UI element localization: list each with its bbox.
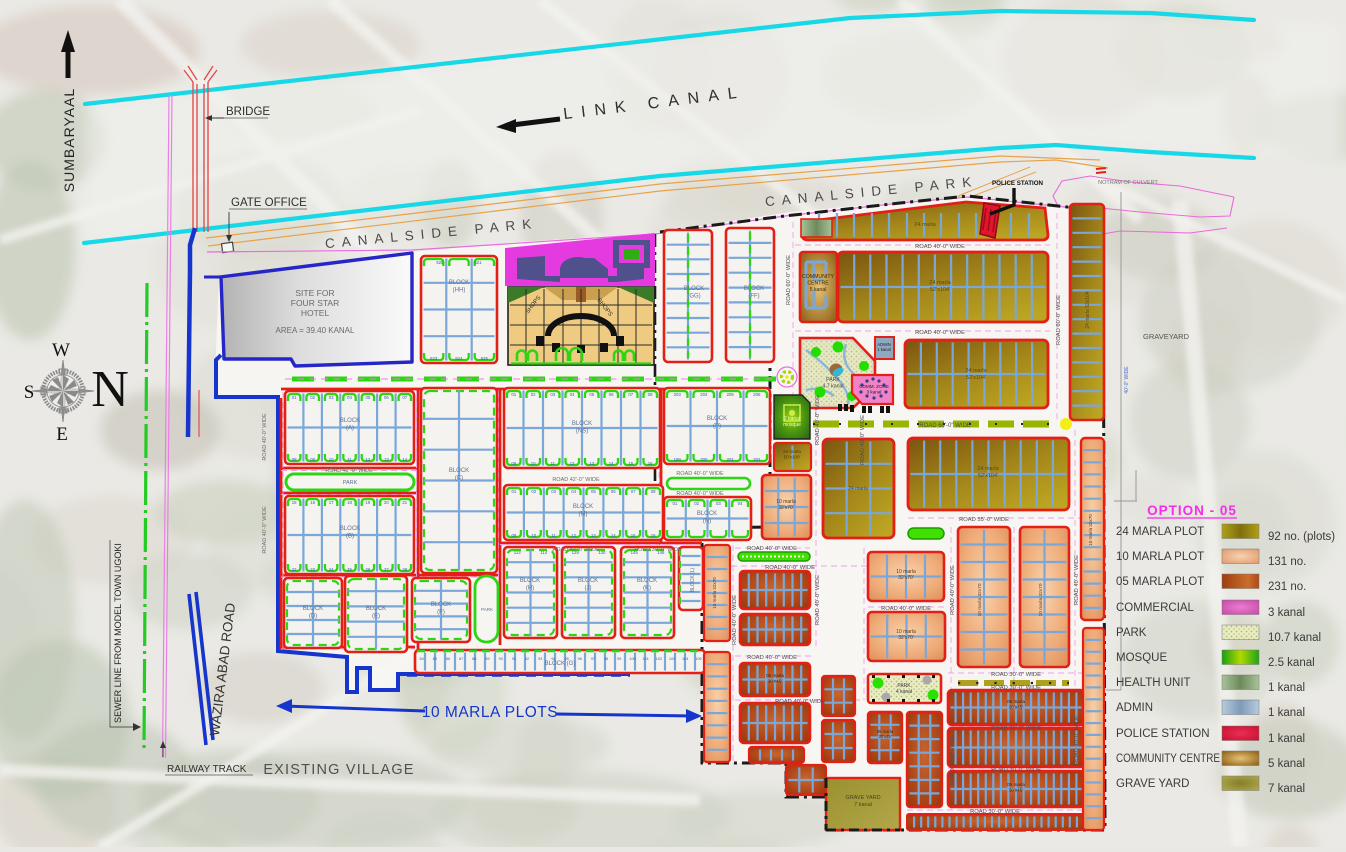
- svg-text:09: 09: [310, 457, 315, 462]
- svg-text:02: 02: [531, 392, 536, 397]
- svg-text:202: 202: [753, 457, 761, 462]
- svg-text:22: 22: [292, 567, 297, 572]
- svg-text:206: 206: [753, 392, 761, 397]
- svg-text:07: 07: [402, 395, 407, 400]
- svg-text:PARK: PARK: [343, 480, 358, 486]
- svg-text:26: 26: [366, 567, 371, 572]
- svg-text:97: 97: [591, 657, 595, 661]
- svg-text:10.7 kanal: 10.7 kanal: [1268, 632, 1321, 644]
- svg-text:PARK4 kanal: PARK4 kanal: [896, 683, 912, 695]
- svg-text:ROAD 40'-0" WIDE: ROAD 40'-0" WIDE: [1074, 715, 1080, 765]
- svg-text:16: 16: [310, 500, 315, 505]
- svg-text:10: 10: [531, 533, 536, 538]
- svg-text:14: 14: [402, 457, 407, 462]
- svg-text:24 marla52'x104': 24 marla52'x104': [977, 466, 999, 479]
- svg-text:24 MARLA PLOT: 24 MARLA PLOT: [1116, 526, 1204, 538]
- svg-text:3 kanal: 3 kanal: [1268, 607, 1305, 619]
- svg-text:92 no. (plots): 92 no. (plots): [1268, 531, 1335, 543]
- svg-text:06: 06: [611, 489, 616, 494]
- svg-text:01: 01: [511, 392, 516, 397]
- svg-text:40'-0" WIDE: 40'-0" WIDE: [1124, 366, 1130, 394]
- svg-text:01: 01: [292, 395, 297, 400]
- svg-text:204: 204: [700, 392, 708, 397]
- svg-text:AREA = 39.40 KANAL: AREA = 39.40 KANAL: [276, 326, 355, 335]
- svg-text:EXISTING VILLAGE: EXISTING VILLAGE: [263, 762, 414, 778]
- svg-text:10 marla 32x70: 10 marla 32x70: [977, 583, 983, 616]
- svg-text:09: 09: [512, 533, 517, 538]
- svg-text:BLOCK (G): BLOCK (G): [545, 661, 576, 667]
- svg-text:10 marla32'x70': 10 marla32'x70': [896, 629, 916, 641]
- svg-text:04: 04: [738, 501, 743, 506]
- svg-text:96: 96: [578, 657, 582, 661]
- svg-text:87: 87: [459, 657, 463, 661]
- svg-text:200: 200: [700, 457, 708, 462]
- svg-text:525: 525: [481, 356, 489, 361]
- svg-text:24 marla: 24 marla: [848, 486, 868, 492]
- svg-text:E: E: [56, 424, 68, 445]
- svg-text:GRAVEYARD: GRAVEYARD: [1143, 332, 1190, 341]
- svg-text:ROAD 40'-0" WIDE: ROAD 40'-0" WIDE: [881, 606, 931, 612]
- svg-text:12: 12: [570, 461, 575, 466]
- svg-text:85: 85: [433, 657, 437, 661]
- svg-text:24 marla: 24 marla: [914, 222, 936, 228]
- svg-text:1 kanal: 1 kanal: [1268, 733, 1305, 745]
- svg-text:90: 90: [499, 657, 503, 661]
- svg-text:15: 15: [628, 461, 633, 466]
- svg-text:RAILWAY TRACK: RAILWAY TRACK: [167, 764, 247, 775]
- svg-text:ROAD 42'-0" WIDE: ROAD 42'-0" WIDE: [325, 468, 373, 474]
- svg-text:203: 203: [674, 392, 682, 397]
- svg-text:03: 03: [329, 395, 334, 400]
- svg-text:14: 14: [609, 461, 614, 466]
- svg-text:ROAD 30'-0" WIDE: ROAD 30'-0" WIDE: [991, 726, 1041, 732]
- svg-text:02: 02: [531, 489, 536, 494]
- svg-text:08: 08: [648, 392, 653, 397]
- svg-text:86: 86: [446, 657, 450, 661]
- svg-text:27: 27: [384, 567, 389, 572]
- svg-text:89: 89: [485, 657, 489, 661]
- svg-text:ROAD 30'-0" WIDE: ROAD 30'-0" WIDE: [950, 735, 956, 785]
- svg-text:ROAD 60'-0" WIDE: ROAD 60'-0" WIDE: [786, 255, 792, 305]
- svg-text:05 MARLA PLOT: 05 MARLA PLOT: [1116, 576, 1204, 588]
- svg-text:114: 114: [540, 550, 547, 555]
- svg-text:20: 20: [384, 500, 389, 505]
- svg-text:99: 99: [617, 657, 621, 661]
- svg-text:146: 146: [657, 550, 665, 555]
- svg-text:95: 95: [564, 657, 568, 661]
- svg-text:10: 10: [329, 457, 334, 462]
- svg-text:07: 07: [631, 489, 636, 494]
- svg-text:15: 15: [631, 533, 636, 538]
- svg-text:1 kanal: 1 kanal: [1268, 682, 1305, 694]
- svg-text:5 kanal: 5 kanal: [1268, 758, 1305, 770]
- svg-text:521: 521: [474, 260, 482, 265]
- svg-text:COMMUNITY CENTRE: COMMUNITY CENTRE: [1116, 753, 1220, 765]
- svg-text:2.5 kanal: 2.5 kanal: [1268, 657, 1315, 669]
- svg-text:ROAD 40'-0" WIDE: ROAD 40'-0" WIDE: [815, 575, 821, 625]
- svg-text:101: 101: [643, 657, 649, 661]
- svg-text:ROAD 60'-0" WIDE: ROAD 60'-0" WIDE: [1056, 295, 1062, 345]
- svg-text:11: 11: [551, 533, 556, 538]
- svg-text:ROAD 40'-0" WIDE: ROAD 40'-0" WIDE: [815, 395, 821, 445]
- svg-text:25: 25: [347, 567, 352, 572]
- svg-text:ROAD 40'-0" WIDE: ROAD 40'-0" WIDE: [775, 699, 825, 705]
- svg-text:10 marla32'x70': 10 marla32'x70': [896, 569, 916, 581]
- svg-text:ROAD 40'-0" WIDE: ROAD 40'-0" WIDE: [1074, 555, 1080, 605]
- svg-text:100: 100: [629, 657, 635, 661]
- svg-text:10 marla 32x70: 10 marla 32x70: [712, 577, 717, 609]
- svg-text:ROAD 40'-0" WIDE: ROAD 40'-0" WIDE: [676, 471, 724, 477]
- svg-text:ROAD 42'-0" WIDE: ROAD 42'-0" WIDE: [552, 477, 600, 483]
- svg-text:17: 17: [329, 500, 334, 505]
- svg-text:03: 03: [716, 501, 721, 506]
- svg-text:28: 28: [402, 567, 407, 572]
- svg-text:16: 16: [651, 533, 656, 538]
- svg-text:91: 91: [512, 657, 516, 661]
- svg-text:5 kanal: 5 kanal: [810, 287, 827, 293]
- svg-text:SITE FORFOUR STAR: SITE FORFOUR STAR: [291, 288, 339, 308]
- svg-text:13: 13: [589, 461, 594, 466]
- svg-text:15: 15: [292, 500, 297, 505]
- svg-text:23: 23: [310, 567, 315, 572]
- svg-text:19: 19: [366, 500, 371, 505]
- svg-text:10 marla 32x70: 10 marla 32x70: [1088, 514, 1093, 546]
- svg-text:129: 129: [572, 550, 580, 555]
- svg-text:104: 104: [682, 657, 688, 661]
- svg-text:14: 14: [611, 533, 616, 538]
- svg-text:523: 523: [430, 356, 438, 361]
- svg-text:05 marla30'x45': 05 marla30'x45': [877, 729, 894, 739]
- svg-text:05: 05: [591, 489, 596, 494]
- svg-text:06: 06: [609, 392, 614, 397]
- svg-text:GRAVE YARD: GRAVE YARD: [1116, 778, 1190, 790]
- svg-text:N: N: [91, 361, 129, 418]
- svg-text:ROAD 30'-0" WIDE: ROAD 30'-0" WIDE: [991, 672, 1041, 678]
- svg-text:84: 84: [419, 657, 423, 661]
- svg-text:04: 04: [347, 395, 352, 400]
- svg-text:145: 145: [631, 550, 639, 555]
- svg-text:BLOCK (L): BLOCK (L): [690, 567, 696, 592]
- svg-text:11: 11: [347, 457, 352, 462]
- svg-text:ROAD 30'-0" WIDE: ROAD 30'-0" WIDE: [991, 685, 1041, 691]
- svg-text:16: 16: [648, 461, 653, 466]
- svg-text:13: 13: [591, 533, 596, 538]
- svg-text:94: 94: [551, 657, 555, 661]
- svg-text:03: 03: [550, 392, 555, 397]
- svg-text:01: 01: [512, 489, 517, 494]
- svg-text:21: 21: [402, 500, 407, 505]
- svg-text:MOSQUE: MOSQUE: [1116, 652, 1167, 664]
- svg-text:10 MARLA PLOTS: 10 MARLA PLOTS: [422, 704, 558, 721]
- svg-text:ROAD 40'-0" WIDE: ROAD 40'-0" WIDE: [860, 415, 866, 465]
- svg-text:201: 201: [727, 457, 735, 462]
- svg-text:08: 08: [651, 489, 656, 494]
- svg-text:PARK: PARK: [481, 607, 493, 612]
- svg-text:ROAD 30'-0" WIDE: ROAD 30'-0" WIDE: [991, 767, 1041, 773]
- svg-text:10 marla 32x70: 10 marla 32x70: [1038, 583, 1044, 616]
- svg-text:92: 92: [525, 657, 529, 661]
- svg-text:131 no.: 131 no.: [1268, 556, 1306, 568]
- svg-text:S: S: [24, 382, 35, 403]
- svg-text:102: 102: [656, 657, 662, 661]
- svg-text:ROAD 40'-0" WIDE: ROAD 40'-0" WIDE: [765, 565, 815, 571]
- svg-text:12: 12: [571, 533, 576, 538]
- svg-text:02: 02: [310, 395, 315, 400]
- svg-text:08: 08: [292, 457, 297, 462]
- svg-text:130: 130: [598, 550, 606, 555]
- svg-text:SEWER LINE FROM MODEL TOWN UGO: SEWER LINE FROM MODEL TOWN UGOKI: [113, 543, 123, 723]
- svg-text:231 no.: 231 no.: [1268, 581, 1306, 593]
- svg-text:POLICE STATION: POLICE STATION: [992, 180, 1044, 187]
- svg-text:01: 01: [673, 501, 678, 506]
- svg-text:ROAD 40'-0" WIDE: ROAD 40'-0" WIDE: [262, 413, 268, 461]
- svg-text:05 marla30'x45': 05 marla30'x45': [1007, 699, 1025, 710]
- svg-text:199: 199: [674, 457, 682, 462]
- svg-text:105: 105: [695, 657, 701, 661]
- svg-text:ROAD 40'-0" WIDE: ROAD 40'-0" WIDE: [747, 546, 797, 552]
- svg-text:07: 07: [628, 392, 633, 397]
- svg-text:ROAD 60'-0" WIDE: ROAD 60'-0" WIDE: [919, 423, 971, 429]
- svg-text:ROAD 40'-0" WIDE: ROAD 40'-0" WIDE: [747, 655, 797, 661]
- svg-text:W: W: [52, 340, 70, 361]
- svg-text:93: 93: [538, 657, 542, 661]
- svg-text:SUMBARYAAL: SUMBARYAAL: [61, 88, 77, 192]
- svg-text:ADMIN1 kanal: ADMIN1 kanal: [877, 342, 891, 352]
- svg-text:ROAD 40'-0" WIDE: ROAD 40'-0" WIDE: [915, 244, 965, 250]
- svg-text:520: 520: [436, 260, 444, 265]
- svg-text:98: 98: [604, 657, 608, 661]
- svg-text:ROAD 40'-0" WIDE: ROAD 40'-0" WIDE: [676, 491, 724, 497]
- svg-text:04: 04: [571, 489, 576, 494]
- svg-text:ROAD 55'-0" WIDE: ROAD 55'-0" WIDE: [959, 517, 1009, 523]
- svg-text:10 marla32'x70': 10 marla32'x70': [776, 499, 796, 511]
- svg-text:113: 113: [514, 550, 521, 555]
- svg-text:HOTEL: HOTEL: [301, 308, 330, 318]
- svg-text:05 marla30'x45': 05 marla30'x45': [1007, 782, 1025, 793]
- svg-text:ADMIN: ADMIN: [1116, 702, 1153, 714]
- svg-text:HEALTH UNIT: HEALTH UNIT: [1116, 677, 1191, 689]
- svg-text:GATE OFFICE: GATE OFFICE: [231, 197, 307, 209]
- svg-text:POLICE STATION: POLICE STATION: [1116, 728, 1210, 740]
- svg-text:ROAD 40'-0" WIDE: ROAD 40'-0" WIDE: [732, 595, 738, 645]
- svg-text:205: 205: [727, 392, 735, 397]
- svg-text:10: 10: [531, 461, 536, 466]
- svg-text:05 marla30'x45': 05 marla30'x45': [766, 673, 784, 684]
- svg-text:PARK: PARK: [1116, 627, 1147, 639]
- svg-text:24 marla52'x104': 24 marla52'x104': [965, 368, 987, 381]
- svg-text:BRIDGE: BRIDGE: [226, 106, 270, 118]
- svg-text:09: 09: [511, 461, 516, 466]
- svg-text:18: 18: [347, 500, 352, 505]
- svg-text:NOTRAM OF CULVERT: NOTRAM OF CULVERT: [1098, 180, 1158, 186]
- svg-text:COMMERCIAL: COMMERCIAL: [1116, 602, 1195, 614]
- svg-text:05: 05: [366, 395, 371, 400]
- svg-text:524: 524: [455, 356, 463, 361]
- svg-text:06: 06: [384, 395, 389, 400]
- svg-text:88: 88: [472, 657, 476, 661]
- svg-text:103: 103: [669, 657, 675, 661]
- svg-text:02: 02: [694, 501, 699, 506]
- svg-text:10 MARLA PLOT: 10 MARLA PLOT: [1116, 551, 1204, 563]
- svg-text:05: 05: [589, 392, 594, 397]
- svg-text:7 kanal: 7 kanal: [1268, 783, 1305, 795]
- svg-text:ROAD 40'-0" WIDE: ROAD 40'-0" WIDE: [950, 565, 956, 615]
- svg-text:24 marla50'x100': 24 marla50'x100': [783, 449, 801, 460]
- svg-text:1 kanal: 1 kanal: [1268, 707, 1305, 719]
- svg-text:04: 04: [570, 392, 575, 397]
- svg-text:03: 03: [551, 489, 556, 494]
- svg-text:ROAD 40'-0" WIDE: ROAD 40'-0" WIDE: [262, 506, 268, 554]
- svg-text:24 marla52'x104': 24 marla52'x104': [929, 280, 951, 293]
- svg-text:ROAD 40'-0" WIDE: ROAD 40'-0" WIDE: [915, 330, 965, 336]
- svg-text:2 kanalmosque: 2 kanalmosque: [783, 416, 801, 428]
- svg-text:ROAD 30'-0" WIDE: ROAD 30'-0" WIDE: [970, 809, 1020, 815]
- svg-text:11: 11: [551, 461, 556, 466]
- svg-text:OPTION - 05: OPTION - 05: [1147, 503, 1237, 518]
- svg-text:24: 24: [329, 567, 334, 572]
- svg-text:12: 12: [366, 457, 371, 462]
- svg-text:24 marla 52x104: 24 marla 52x104: [1085, 291, 1091, 328]
- svg-text:13: 13: [384, 457, 389, 462]
